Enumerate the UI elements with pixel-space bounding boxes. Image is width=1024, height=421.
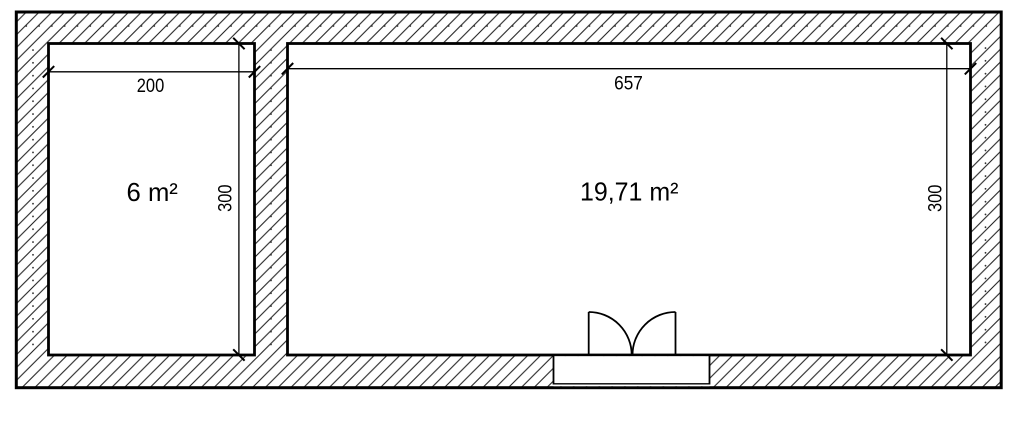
- svg-text:300: 300: [215, 184, 237, 212]
- svg-text:6 m²: 6 m²: [127, 177, 179, 207]
- svg-text:200: 200: [137, 75, 165, 97]
- svg-text:300: 300: [925, 184, 947, 212]
- svg-text:19,71 m²: 19,71 m²: [580, 177, 679, 207]
- svg-text:657: 657: [614, 73, 643, 95]
